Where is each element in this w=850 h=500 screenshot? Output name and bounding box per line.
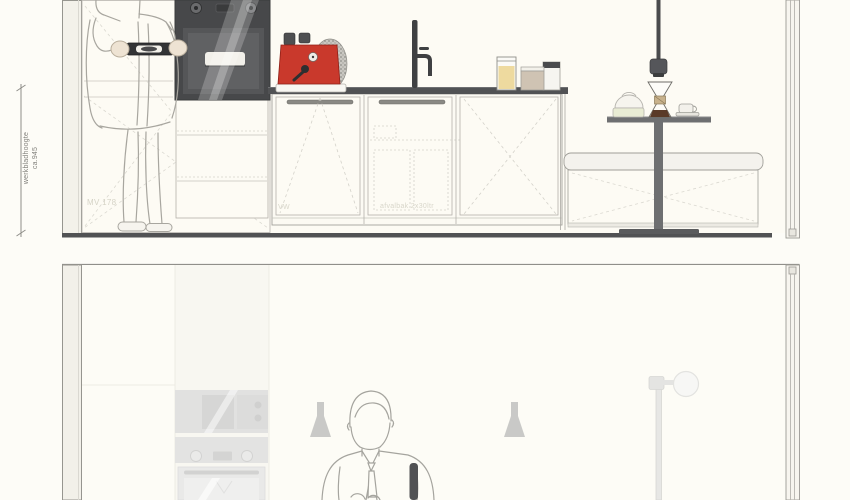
dimension-value: ca.945 — [31, 98, 40, 218]
ghosted-coffee-machine — [175, 390, 268, 433]
elevation-bottom-panel — [0, 245, 850, 500]
dishwasher — [276, 97, 360, 215]
jar-beige — [521, 67, 544, 90]
lamp-globe-icon — [674, 372, 699, 397]
hand — [169, 40, 187, 56]
wall-window-frame — [786, 0, 800, 238]
ghosted-control-panel — [175, 437, 268, 463]
ghosted-oven — [178, 467, 265, 500]
built-in-oven — [175, 0, 270, 100]
left-wall-section — [63, 0, 82, 236]
handle-icon — [379, 100, 445, 104]
corner-cabinet — [460, 97, 558, 215]
dimension-text: werkbladhoogte — [22, 98, 31, 218]
jar-tall-yellow — [497, 57, 516, 90]
left-wall-section — [63, 265, 82, 500]
worktop-height-dimension-label: werkbladhoogte ca.945 — [22, 98, 42, 218]
kitchen-faucet — [410, 463, 419, 500]
jar-small-white — [543, 62, 560, 90]
tall-cabinet-label: MV 178 — [87, 198, 116, 207]
bench-cushion — [564, 153, 763, 170]
waste-drawer-label: afvalbak 2x30ltr — [380, 203, 434, 210]
wall-window-frame — [786, 265, 800, 500]
hand — [111, 41, 129, 57]
elevation-sheet: werkbladhoogte ca.945 MV 178 VW afvalbak… — [0, 0, 850, 500]
dishwasher-label: VW — [278, 204, 290, 211]
bench — [564, 153, 763, 227]
drawer-stack — [176, 100, 268, 218]
handle-icon — [287, 100, 353, 104]
